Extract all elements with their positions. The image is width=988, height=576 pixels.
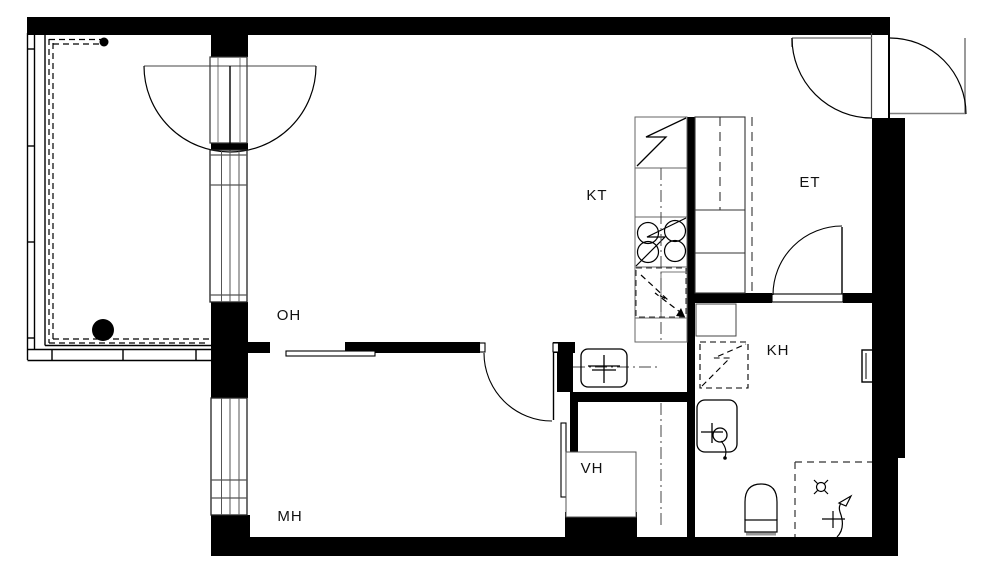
kitchen-sink-icon: [581, 349, 627, 387]
balcony: [27, 33, 211, 361]
balcony-railing-dashed: [49, 39, 209, 343]
fridge-icon: [637, 118, 686, 166]
balcony-drain-icon: [92, 319, 114, 341]
railing-end-dot: [100, 38, 109, 47]
room-label-vh: VH: [581, 460, 604, 477]
room-label-et: ET: [799, 174, 820, 191]
living-room-window: [210, 150, 247, 302]
balcony-parapet: [27, 33, 211, 361]
room-label-mh: MH: [277, 508, 302, 525]
floor-plan-drawing: KT ET OH KH VH MH: [0, 0, 988, 576]
room-label-oh: OH: [277, 307, 302, 324]
shower-mixer-icon: [822, 496, 851, 537]
bathroom-cabinet: [696, 304, 736, 336]
interior-walls: [248, 117, 872, 537]
washing-machine-icon: [700, 342, 748, 388]
bathroom-door: [772, 226, 843, 302]
floor-drain-icon: [814, 480, 828, 494]
balcony-door: [144, 57, 316, 152]
bedroom-door: [480, 343, 559, 421]
entrance-door: [792, 33, 966, 118]
sliding-door-living-bedroom: [286, 351, 375, 356]
sliding-door-closet: [561, 423, 566, 497]
room-label-kh: KH: [767, 342, 790, 359]
bedroom-window: [211, 398, 247, 515]
laundry-sink-icon: [697, 400, 737, 460]
floor-plan: KT ET OH KH VH MH: [0, 0, 988, 576]
wardrobe-icon: [695, 117, 752, 293]
toilet-icon: [745, 484, 777, 534]
room-label-kt: KT: [586, 187, 607, 204]
